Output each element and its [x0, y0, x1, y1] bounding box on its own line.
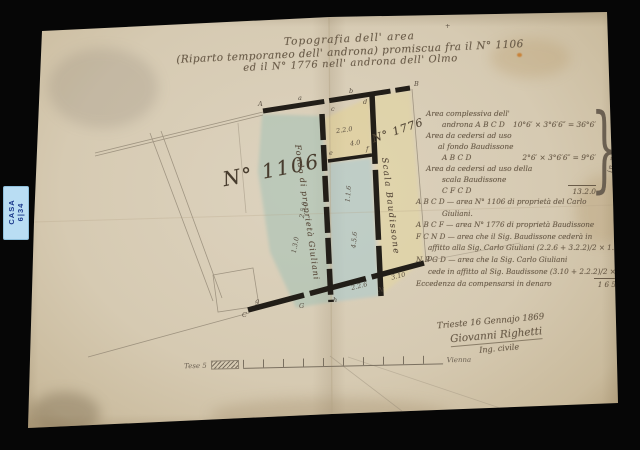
note-line: A B C D — area N° 1106 di proprietà del … — [416, 196, 622, 208]
archive-sticker-line-1: CASA — [7, 199, 16, 224]
paper-sheet: Topografia dell' area (Riparto temporane… — [0, 0, 640, 450]
archive-sticker: CASA 6|34 — [3, 186, 29, 240]
note-line: affitto alla Sig. Carlo Giuliani (2.2.6 … — [416, 242, 622, 254]
note-line: Giuliani. — [416, 208, 622, 220]
scale-hatched-unit — [211, 360, 239, 370]
scale-right-label: Vienna — [447, 355, 472, 364]
note-line: Eccedenza da compensarsi in denaro1 6 5 — [416, 278, 622, 291]
note-line: Area da cedersi ad uso — [426, 130, 596, 141]
exchange-calculation-notes: A B C D — area N° 1106 di proprietà del … — [416, 196, 622, 291]
note-line: cede in affitto al Sig. Baudissone (3.10… — [416, 266, 622, 279]
photographed-survey-document: Topografia dell' area (Riparto temporane… — [0, 0, 640, 450]
scale-left-label: Tese 5 — [184, 361, 207, 370]
note-line: androna A B C D10°6′ × 3°6′6″ = 36°6′ — [426, 119, 596, 130]
note-line: Area da cedersi ad uso della — [426, 163, 596, 174]
note-line: A B C F — area N° 1776 di proprietà Baud… — [416, 219, 622, 231]
area-summary-notes: Area complessiva dell'androna A B C D10°… — [426, 108, 596, 197]
note-line: F C N D — area che il Sig. Baudissone ce… — [416, 231, 622, 243]
note-line: scala Baudissone — [426, 174, 596, 185]
note-line: al fondo Baudissone — [426, 141, 596, 152]
grouping-brace: } — [591, 102, 618, 196]
note-line: N B G D — area che la Sig. Carlo Giulian… — [416, 254, 622, 266]
archive-sticker-text: CASA 6|34 — [5, 187, 27, 237]
note-line: A B C D2°6′ × 3°6′6″ = 9°6′ — [426, 152, 596, 163]
archive-sticker-line-2: 6|34 — [16, 203, 25, 222]
note-line: Area complessiva dell' — [426, 108, 596, 119]
